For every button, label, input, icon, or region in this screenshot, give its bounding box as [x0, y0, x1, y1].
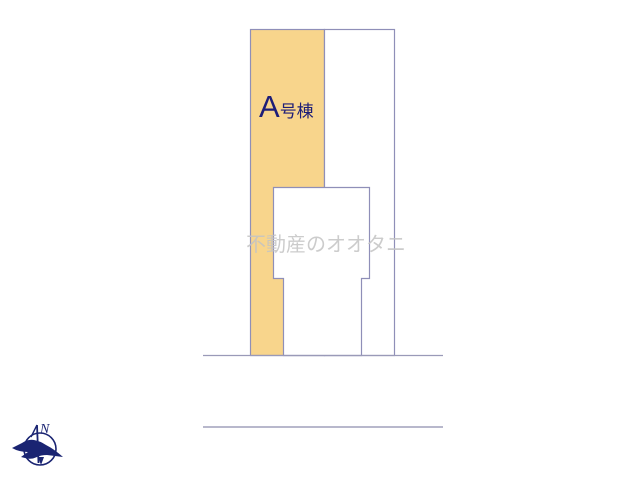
- unit-label-letter: A: [259, 89, 280, 124]
- building-footprint: [274, 188, 370, 356]
- unit-label: A号棟: [259, 90, 314, 130]
- compass-north-label: N: [39, 422, 50, 437]
- unit-label-suffix: 号棟: [280, 102, 314, 121]
- site-plan-page: A号棟 不動産のオオタニ N: [0, 0, 640, 480]
- watermark: 不動産のオオタニ: [246, 228, 406, 257]
- compass-needle-flick: [31, 425, 37, 437]
- compass-icon: N: [10, 412, 70, 478]
